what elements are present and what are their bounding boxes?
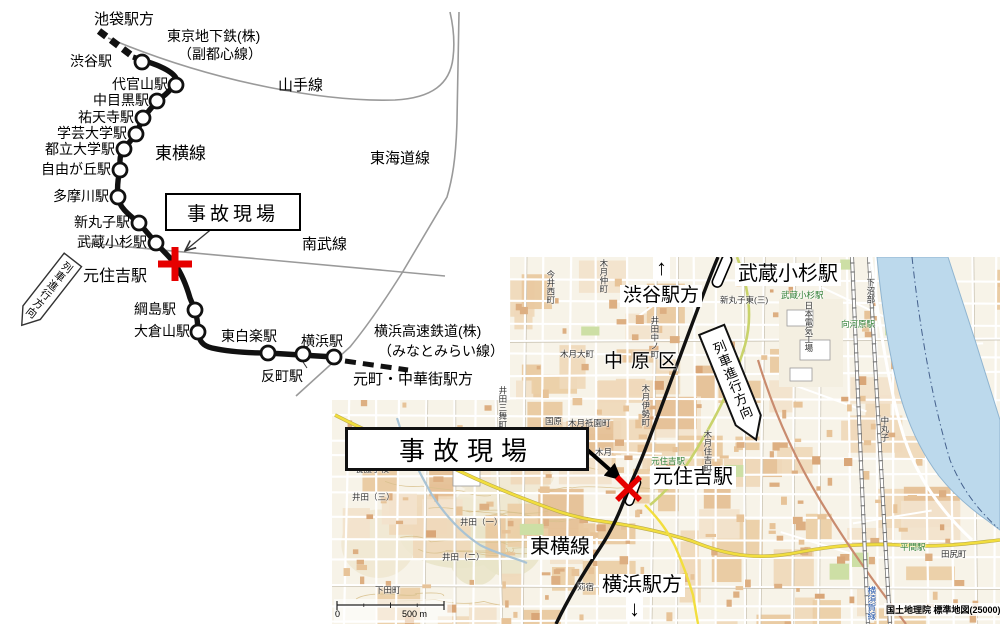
nambu-line: 南武線 [302,237,347,254]
map-place-label: 武蔵小杉駅 [781,291,824,300]
map-place-label: 新丸子東(三) [720,296,768,305]
station-label-東白楽駅: 東白楽駅 [221,329,277,345]
station-label-新丸子駅: 新丸子駅 [74,215,130,231]
shibuya-direction-arrow: ↑ [653,255,670,280]
station-label-綱島駅: 綱島駅 [134,302,176,318]
station-circle [149,236,163,250]
scale-bar-line [334,599,452,611]
map-place-label: 横須賀線 [867,586,876,620]
minatomirai-line2: （みなとみらい線） [378,344,504,360]
motosumiyoshi-station: 元住吉駅 [83,268,147,286]
map-place-label: 向河原駅 [841,320,875,329]
tammachi-leader-line [303,362,307,368]
ikebukuro-direction: 池袋駅方 [94,12,154,29]
station-circle [129,127,143,141]
station-label-代官山駅: 代官山駅 [112,77,168,93]
accident-site-callout-schematic: 事故現場 [165,193,301,231]
scale-distance: 500 m [402,609,427,619]
station-circle [191,325,205,339]
station-label-都立大学駅: 都立大学駅 [45,142,115,158]
map-place-label: 井田三舞町 [498,386,507,429]
map-place-label: 井田（二） [442,553,485,562]
toyoko-line: 東横線 [155,144,206,163]
station-label-中目黒駅: 中目黒駅 [93,93,149,109]
tokyo-metro-line1: 東京地下鉄(株) [167,29,260,45]
musashikosugi-station-label: 武蔵小杉駅 [735,263,841,286]
station-circle [169,78,183,92]
station-circle [111,190,125,204]
map-place-label: 井田（一） [460,518,503,527]
station-circle [188,303,202,317]
map-place-label: 下沼部 [866,278,875,304]
motosumiyoshi-station-label: 元住吉駅 [650,466,736,489]
map-place-label: 木月 [595,448,612,457]
map-place-label: 平間駅 [900,543,926,552]
station-circle [327,350,341,364]
station-label-大倉山駅: 大倉山駅 [134,324,190,340]
map-place-label: 井田中ノ町 [650,316,659,359]
minatomirai-dashed-stub [345,361,408,370]
map-place-label: 木月大町 [560,350,594,359]
map-place-label: 木月伊勢町 [641,384,650,427]
map-place-label: 中丸子 [880,416,889,442]
map-place-label: 木月仲町 [599,259,608,293]
station-circle [261,346,275,360]
station-label-反町駅: 反町駅 [261,369,303,385]
map-place-label: 日本電気工場 [804,301,813,352]
toyoko-line-label: 東横線 [527,536,593,559]
station-circle [132,216,146,230]
station-label-渋谷駅: 渋谷駅 [70,54,112,70]
motomachi-direction: 元町・中華街駅方 [353,372,473,389]
map-place-label: 田尻町 [941,550,967,559]
station-label-多摩川駅: 多摩川駅 [53,189,109,205]
accident-site-callout-map: 事故現場 [345,427,589,471]
tokyo-metro-line2: （副都心線） [178,47,262,63]
station-circle [135,55,149,69]
shibuya-direction: 渋谷駅方 [620,285,702,307]
tokaido-line: 東海道線 [370,151,430,168]
map-place-label: 今井西町 [546,270,555,304]
station-label-学芸大学駅: 学芸大学駅 [57,126,127,142]
map-place-label: 国原 [545,417,562,426]
map-place-label: 下田町 [375,586,401,595]
station-label-武蔵小杉駅: 武蔵小杉駅 [77,235,147,251]
scale-zero: 0 [335,609,340,619]
map-scale-bar: 0 500 m [334,599,452,623]
yokohama-direction: 横浜駅方 [599,574,685,597]
fukutoshin-dashed-stub [99,31,131,55]
station-label-祐天寺駅: 祐天寺駅 [78,110,134,126]
station-circle [136,111,150,125]
yokohama-direction-arrow: ↓ [626,596,643,621]
map-place-label: 元住吉駅 [651,457,685,466]
station-label-自由が丘駅: 自由が丘駅 [41,162,111,178]
map-place-label: 苅宿 [577,583,594,592]
figure-accident-location: 渋谷駅代官山駅中目黒駅祐天寺駅学芸大学駅都立大学駅自由が丘駅多摩川駅新丸子駅武蔵… [0,0,1000,635]
station-circle [113,163,127,177]
station-circle [117,142,131,156]
station-label-横浜駅: 横浜駅 [301,334,343,350]
map-place-label: 井田（三） [352,493,395,502]
map-place-label: 木月住吉町 [703,430,712,473]
yamanote-line: 山手線 [278,78,323,95]
minatomirai-line1: 横浜高速鉄道(株) [374,324,481,340]
station-circle [150,94,164,108]
map-attribution: 国土地理院 標準地図(25000) [884,603,1000,616]
nakahara-ward: 中原区 [604,351,685,372]
